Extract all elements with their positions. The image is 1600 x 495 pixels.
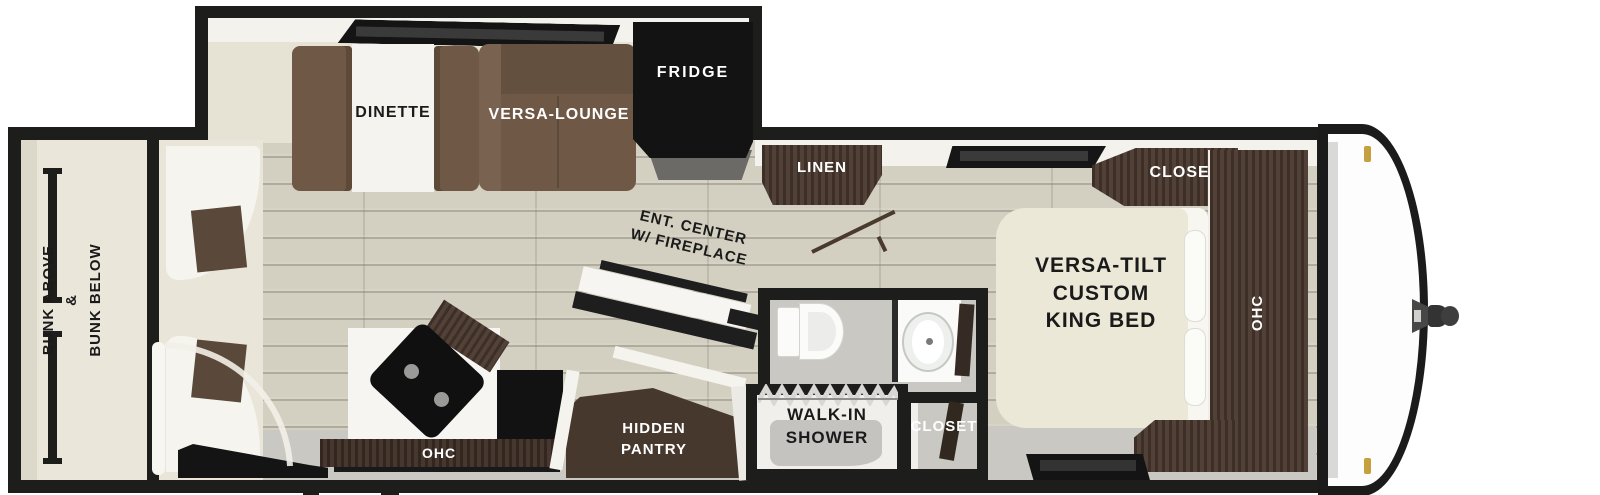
- fridge: [633, 22, 753, 158]
- bedroom-top-window-glass: [960, 151, 1088, 161]
- sink-faucet: [404, 364, 419, 379]
- shower-label-line1: WALK-IN: [762, 404, 892, 427]
- exterior-step-mark: [303, 490, 319, 495]
- linen-label: LINEN: [762, 158, 882, 178]
- bed-label-line3: KING BED: [1006, 307, 1196, 335]
- rv-floorplan: BUNK ABOVE & BUNK BELOW DINETTE VERSA-LO…: [0, 0, 1600, 495]
- vanity-edge: [892, 300, 898, 382]
- clearance-light: [1364, 458, 1371, 474]
- kitchen-range: [497, 370, 563, 440]
- clearance-light: [1364, 146, 1371, 162]
- bathroom-wall-top: [758, 288, 988, 300]
- bed-label-line2: CUSTOM: [1006, 280, 1196, 308]
- bathroom-wall-left: [758, 288, 770, 390]
- bed-label-line1: VERSA-TILT: [1006, 252, 1196, 280]
- bed-pillow: [1184, 328, 1206, 406]
- fridge-label: FRIDGE: [633, 62, 753, 84]
- walk-in-shower-label: WALK-IN SHOWER: [762, 404, 892, 450]
- exterior-step-mark: [381, 490, 399, 495]
- bedroom-ohc-label: OHC: [1248, 283, 1268, 343]
- hitch-coupler: [1441, 306, 1459, 326]
- pantry-label-line1: HIDDEN: [588, 418, 720, 439]
- pantry-label-line2: PANTRY: [588, 439, 720, 460]
- front-cap-shade: [1328, 142, 1338, 478]
- shower-glass-zigzag: [758, 384, 898, 406]
- bedroom-bottom-window-glass: [1040, 460, 1136, 471]
- hidden-pantry-label: HIDDEN PANTRY: [588, 418, 720, 460]
- entry-door-swing-arc: [0, 0, 400, 495]
- hitch-notch: [1414, 310, 1421, 322]
- sofa-back-cushion: [479, 44, 636, 94]
- bathroom-wall-right: [976, 288, 988, 394]
- versa-lounge-label: VERSA-LOUNGE: [474, 104, 644, 126]
- king-bed-label: VERSA-TILT CUSTOM KING BED: [1006, 252, 1196, 335]
- toilet-tank: [777, 307, 800, 357]
- sink-drain: [926, 338, 933, 345]
- bath-closet-label: CLOSET: [898, 417, 990, 437]
- bed-foot-cabinet: [1134, 420, 1238, 472]
- sink-faucet: [434, 392, 449, 407]
- shower-label-line2: SHOWER: [762, 427, 892, 450]
